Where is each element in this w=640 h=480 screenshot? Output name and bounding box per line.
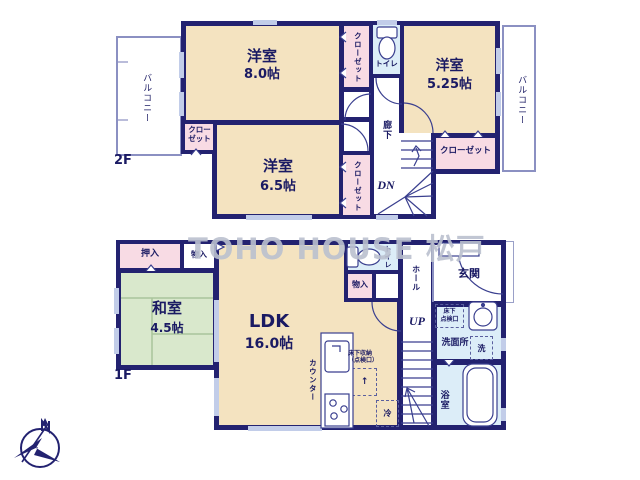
floor2-label: 2F bbox=[114, 154, 132, 169]
counter-label: カウンター bbox=[305, 352, 319, 408]
balcony-ticks bbox=[118, 62, 128, 120]
room65-size: 6.5帖 bbox=[212, 180, 344, 195]
door-room65 bbox=[341, 124, 368, 151]
compass-icon bbox=[14, 418, 60, 467]
underfloor-storage-label: 床下収納 （点検口） bbox=[348, 351, 380, 365]
room65-name: 洋室 bbox=[212, 158, 344, 175]
closet525-label: クローゼット bbox=[433, 147, 498, 157]
stairs-up-label: UP bbox=[400, 315, 434, 329]
washitsu-name: 和室 bbox=[116, 300, 218, 317]
toilet-2f-icon bbox=[377, 27, 397, 59]
ldk-size: 16.0帖 bbox=[214, 336, 324, 352]
toilet2f-label: トイレ bbox=[369, 60, 404, 69]
stairs-1f-arrow bbox=[407, 388, 429, 426]
closet8-label: クローゼット bbox=[344, 26, 370, 88]
hallway-label: 廊下 bbox=[377, 112, 395, 148]
room525-size: 5.25帖 bbox=[399, 78, 500, 93]
storage-mid-label: 物入 bbox=[346, 280, 374, 289]
genkan-label: 玄関 bbox=[436, 268, 502, 281]
washbasin-icon bbox=[469, 302, 497, 330]
washroom-label: 洗面所 bbox=[434, 338, 476, 348]
compass-north-label: N bbox=[52, 414, 59, 423]
stairs-down-label: DN bbox=[372, 179, 400, 193]
closet65-left-label: クロー ゼット bbox=[184, 126, 215, 143]
bathroom-label: 浴室 bbox=[436, 380, 451, 420]
door-room525 bbox=[404, 103, 433, 133]
door-ldk bbox=[372, 302, 401, 331]
floor-plan: バルコニー バルコニー 2F 洋室 8.0帖 洋室 5.25帖 洋室 6.5帖 … bbox=[0, 0, 640, 480]
room525-name: 洋室 bbox=[399, 58, 500, 74]
watermark: TOHO HOUSE 松戸 bbox=[188, 226, 488, 268]
door-room8 bbox=[345, 94, 371, 120]
kitchen-counter-icon bbox=[321, 333, 353, 428]
room8-size: 8.0帖 bbox=[182, 68, 342, 83]
floor1-label: 1F bbox=[114, 369, 132, 384]
stairs-2f-arrow bbox=[414, 148, 419, 166]
room8-name: 洋室 bbox=[182, 48, 342, 65]
bathtub-icon bbox=[463, 364, 497, 426]
washitsu-size: 4.5帖 bbox=[116, 322, 218, 336]
stairs-1f-treads bbox=[401, 342, 433, 426]
closet65-right-label: クローゼット bbox=[345, 158, 369, 214]
oshiire-label: 押入 bbox=[118, 249, 182, 259]
ldk-name: LDK bbox=[214, 312, 324, 333]
